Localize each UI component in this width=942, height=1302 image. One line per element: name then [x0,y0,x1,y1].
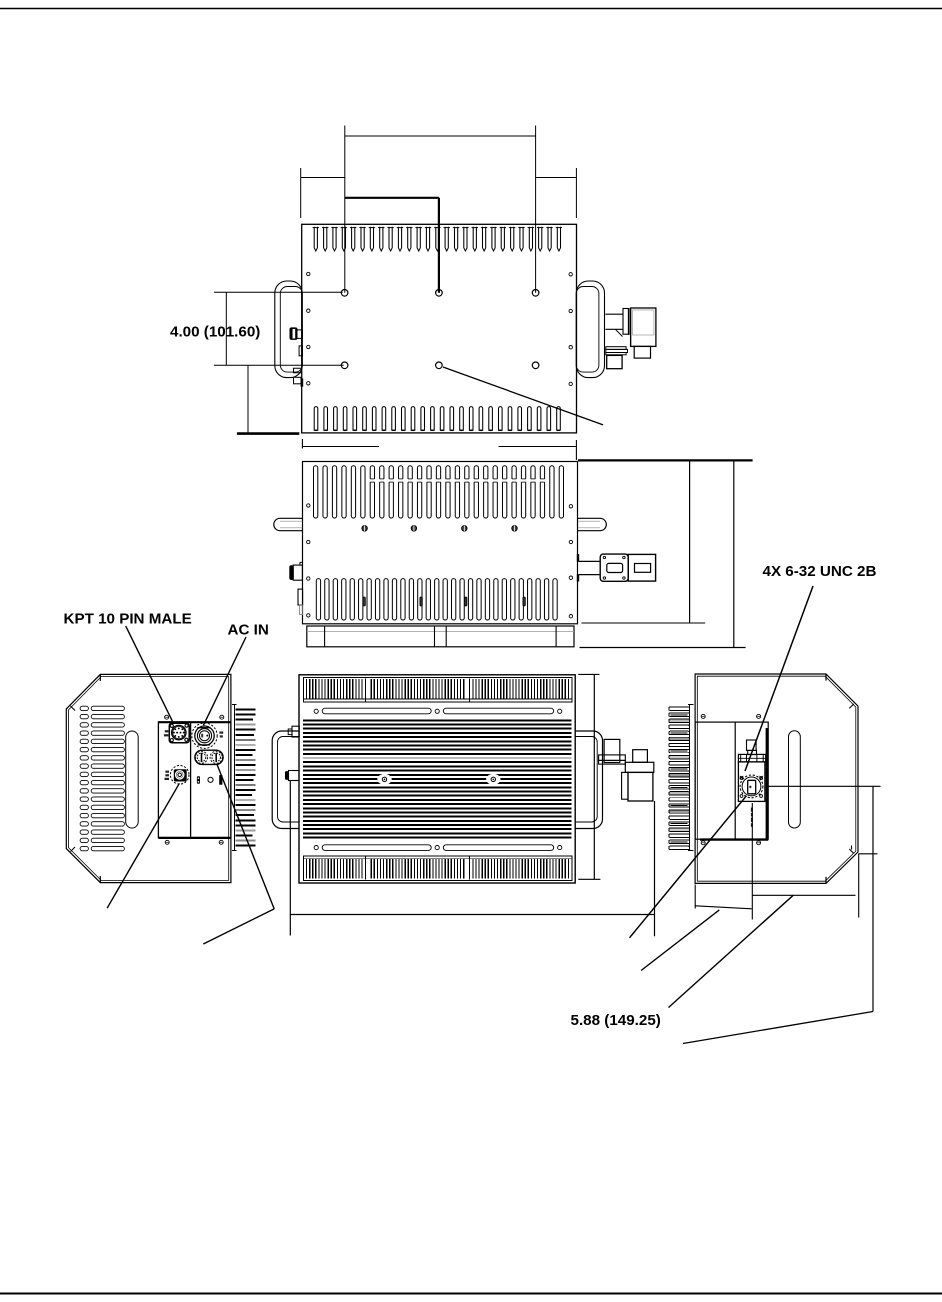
svg-text:4.00 (101.60): 4.00 (101.60) [170,324,260,341]
svg-text:4X 6-32 UNC 2B: 4X 6-32 UNC 2B [763,563,877,580]
svg-text:AC IN: AC IN [228,621,269,638]
svg-text:KPT 10 PIN MALE: KPT 10 PIN MALE [64,611,192,628]
svg-text:5.88 (149.25): 5.88 (149.25) [571,1012,661,1029]
